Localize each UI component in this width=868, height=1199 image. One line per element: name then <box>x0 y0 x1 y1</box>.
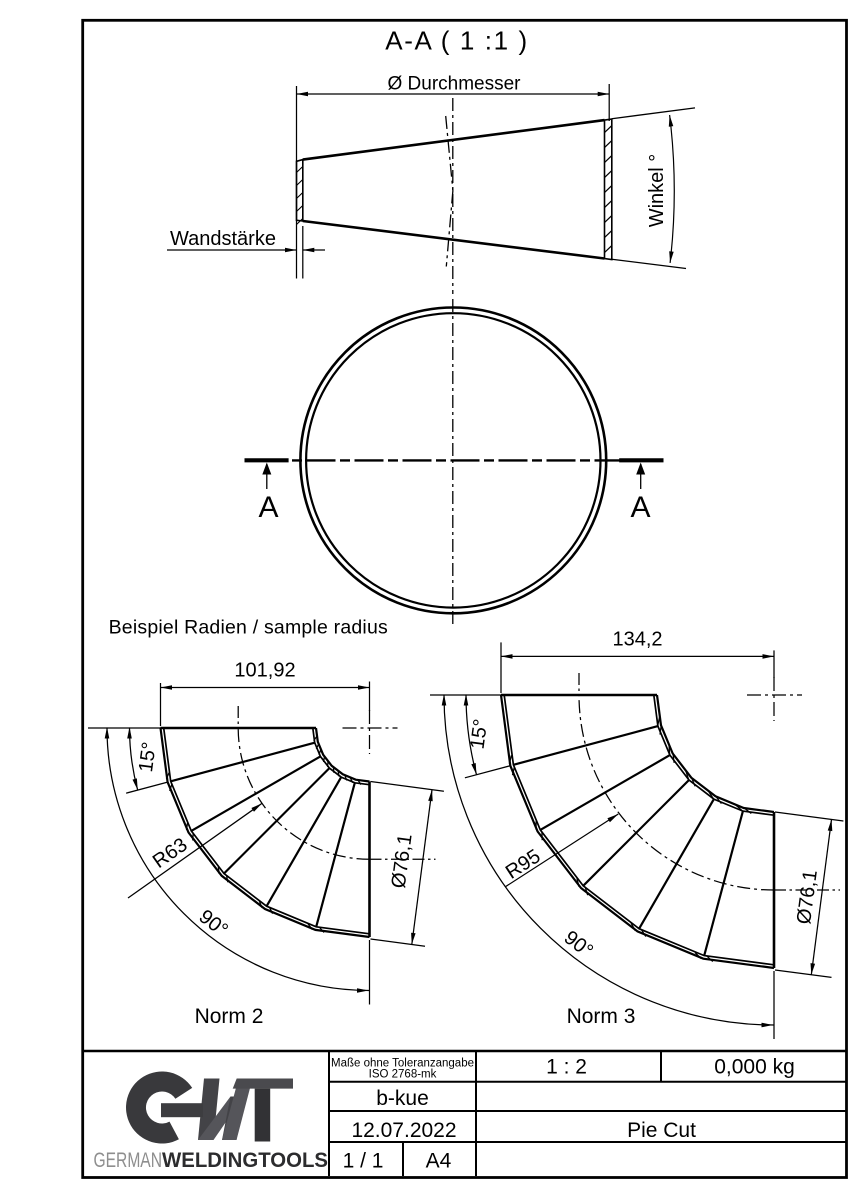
svg-text:Wandstärke: Wandstärke <box>170 228 276 250</box>
svg-text:ISO 2768-mk: ISO 2768-mk <box>369 1069 437 1081</box>
svg-text:1 : 2: 1 : 2 <box>546 1056 587 1079</box>
svg-text:GERMAN: GERMAN <box>94 1149 163 1172</box>
svg-text:A: A <box>630 491 650 524</box>
svg-text:A-A ( 1 :1 ): A-A ( 1 :1 ) <box>385 26 528 56</box>
svg-text:0,000 kg: 0,000 kg <box>714 1056 795 1079</box>
svg-text:Beispiel Radien / sample radiu: Beispiel Radien / sample radius <box>109 617 388 639</box>
svg-text:1 / 1: 1 / 1 <box>343 1150 384 1173</box>
svg-text:A: A <box>258 491 278 524</box>
svg-text:12.07.2022: 12.07.2022 <box>351 1119 456 1142</box>
svg-text:Pie Cut: Pie Cut <box>627 1119 696 1142</box>
svg-text:Winkel °: Winkel ° <box>646 154 668 228</box>
svg-text:15°: 15° <box>467 718 493 751</box>
svg-text:WELDINGTOOLS: WELDINGTOOLS <box>162 1149 328 1172</box>
svg-text:15°: 15° <box>135 741 161 774</box>
svg-text:b-kue: b-kue <box>376 1087 429 1110</box>
svg-text:A4: A4 <box>426 1150 452 1173</box>
svg-text:Norm 2: Norm 2 <box>195 1005 264 1028</box>
svg-text:Ø Durchmesser: Ø Durchmesser <box>387 74 521 95</box>
svg-text:Norm 3: Norm 3 <box>567 1005 636 1028</box>
svg-text:134,2: 134,2 <box>612 628 662 650</box>
svg-text:101,92: 101,92 <box>234 660 295 682</box>
